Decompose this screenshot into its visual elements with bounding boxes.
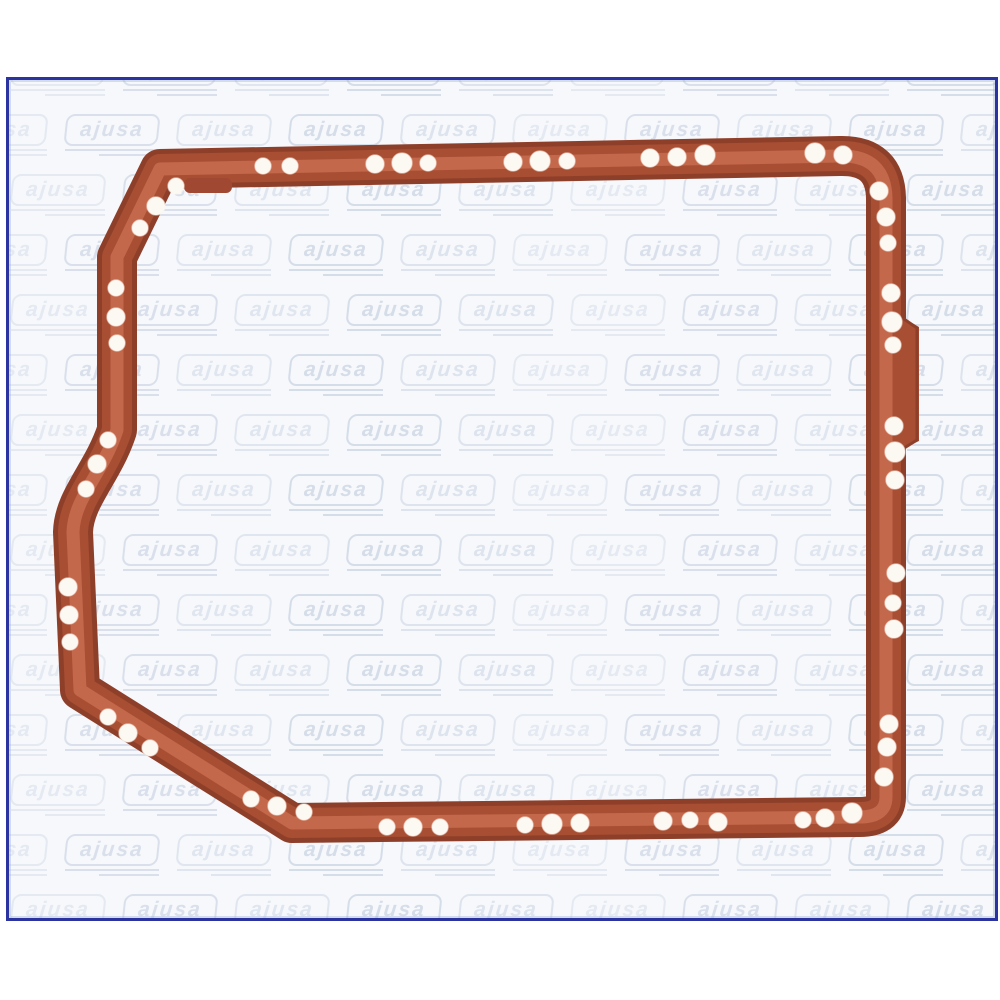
bolt-hole [100,709,116,725]
bolt-hole [119,724,137,742]
bolt-hole [885,442,905,462]
bolt-hole [108,280,124,296]
bolt-hole [366,155,384,173]
bolt-hole [504,153,522,171]
bolt-hole [887,564,905,582]
bolt-hole [885,417,903,435]
product-photo: ajusaajusaajusaajusaajusaajusaajusaajusa… [0,0,1000,1000]
bolt-hole [875,768,893,786]
bolt-hole [282,158,298,174]
bolt-hole [420,155,436,171]
gasket-outline-pass-0 [73,156,886,823]
bolt-hole [88,455,106,473]
bolt-hole [296,804,312,820]
gasket-outline-pass-2 [73,156,886,823]
bolt-hole [255,158,271,174]
bolt-hole [517,817,533,833]
bolt-hole [885,595,901,611]
bolt-hole [882,312,902,332]
bolt-hole [168,178,184,194]
bolt-hole [834,146,852,164]
bolt-hole [842,803,862,823]
bolt-hole [559,153,575,169]
bolt-hole [682,812,698,828]
bolt-hole [147,197,165,215]
bolt-hole [877,208,895,226]
bolt-hole [641,149,659,167]
bolt-hole [379,819,395,835]
bolt-hole [100,432,116,448]
bolt-hole [530,151,550,171]
bolt-hole [107,308,125,326]
gasket-outline-pass-1 [73,156,886,823]
bolt-hole [268,797,286,815]
bolt-hole [132,220,148,236]
gasket-top-tab [184,178,232,193]
bolt-hole [882,284,900,302]
bolt-hole [885,620,903,638]
bolt-hole [880,715,898,733]
bolt-hole [571,814,589,832]
bolt-hole [805,143,825,163]
bolt-hole [880,235,896,251]
bolt-hole [392,153,412,173]
bolt-hole [542,814,562,834]
bolt-hole [668,148,686,166]
bolt-hole [432,819,448,835]
bolt-hole [886,471,904,489]
bolt-hole [709,813,727,831]
bolt-hole [60,606,78,624]
bolt-hole [870,182,888,200]
bolt-hole [654,812,672,830]
bolt-hole [695,145,715,165]
bolt-hole [878,738,896,756]
bolt-hole [885,337,901,353]
oil-pan-gasket-image [0,0,1000,1000]
bolt-hole [59,578,77,596]
bolt-hole [142,740,158,756]
bolt-hole [109,335,125,351]
bolt-hole [78,481,94,497]
bolt-hole [62,634,78,650]
bolt-hole [404,818,422,836]
bolt-hole [816,809,834,827]
bolt-hole [243,791,259,807]
bolt-hole [795,812,811,828]
